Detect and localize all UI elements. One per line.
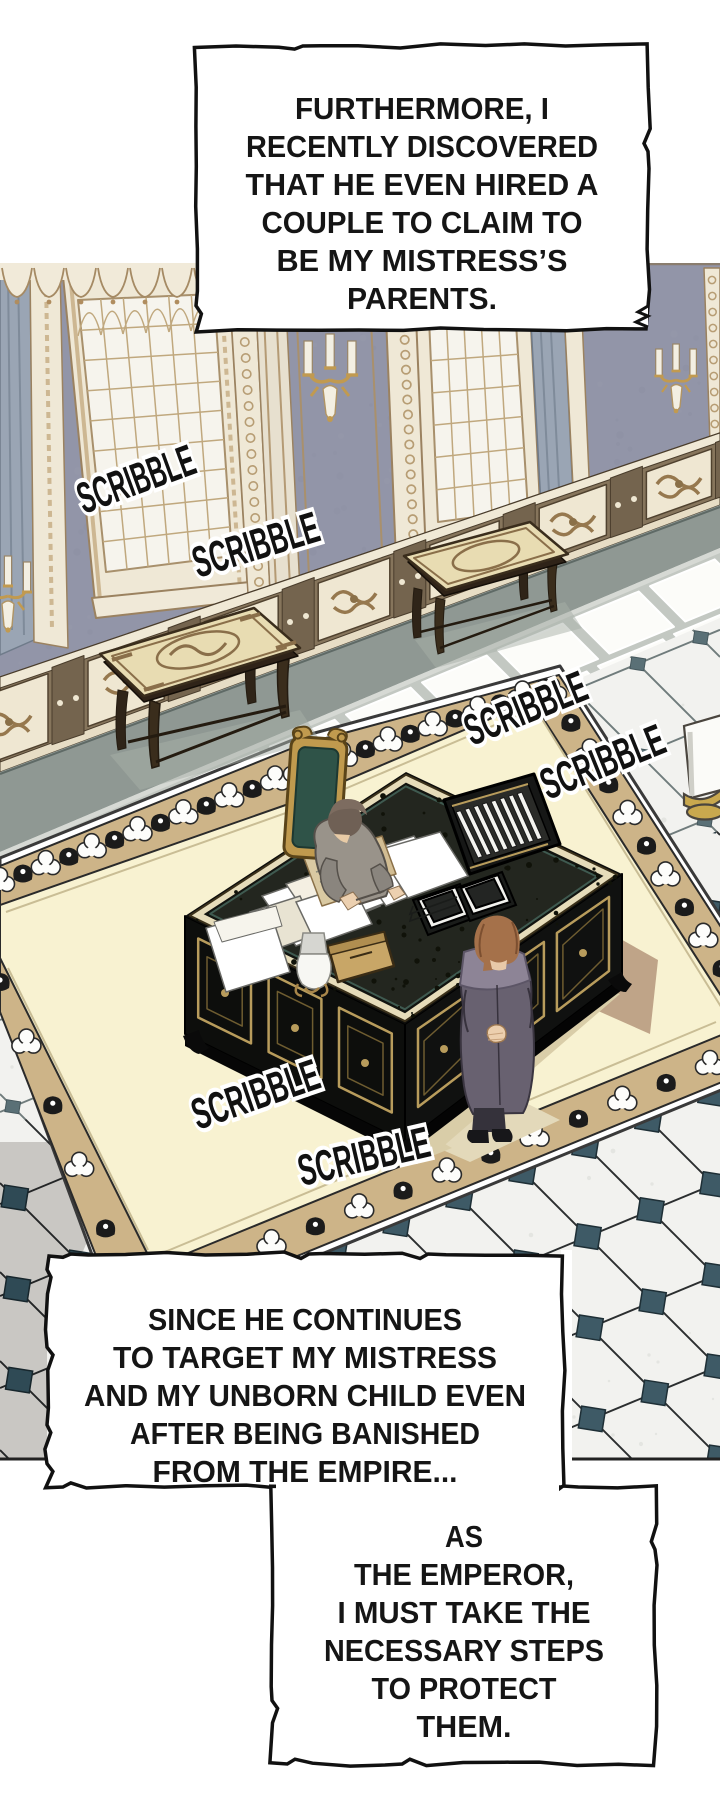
- svg-text:THE EMPEROR,: THE EMPEROR,: [354, 1557, 574, 1592]
- svg-text:NECESSARY STEPS: NECESSARY STEPS: [324, 1633, 604, 1668]
- svg-text:SINCE HE CONTINUES: SINCE HE CONTINUES: [148, 1302, 462, 1337]
- svg-text:RECENTLY DISCOVERED: RECENTLY DISCOVERED: [246, 129, 598, 164]
- svg-text:AS: AS: [445, 1519, 483, 1554]
- svg-text:THEM.: THEM.: [417, 1709, 512, 1744]
- svg-text:PARENTS.: PARENTS.: [347, 281, 497, 316]
- svg-text:BE MY MISTRESS’S: BE MY MISTRESS’S: [277, 243, 568, 278]
- svg-text:THAT HE EVEN HIRED A: THAT HE EVEN HIRED A: [246, 167, 599, 202]
- svg-text:FROM THE EMPIRE...: FROM THE EMPIRE...: [153, 1454, 458, 1489]
- svg-text:AFTER BEING BANISHED: AFTER BEING BANISHED: [130, 1416, 480, 1451]
- svg-text:TO TARGET MY MISTRESS: TO TARGET MY MISTRESS: [113, 1340, 497, 1375]
- svg-text:COUPLE TO CLAIM TO: COUPLE TO CLAIM TO: [262, 205, 583, 240]
- svg-text:TO PROTECT: TO PROTECT: [372, 1671, 557, 1706]
- svg-text:AND MY UNBORN CHILD EVEN: AND MY UNBORN CHILD EVEN: [84, 1378, 526, 1413]
- svg-text:I MUST TAKE THE: I MUST TAKE THE: [338, 1595, 591, 1630]
- svg-text:FURTHERMORE, I: FURTHERMORE, I: [295, 91, 549, 126]
